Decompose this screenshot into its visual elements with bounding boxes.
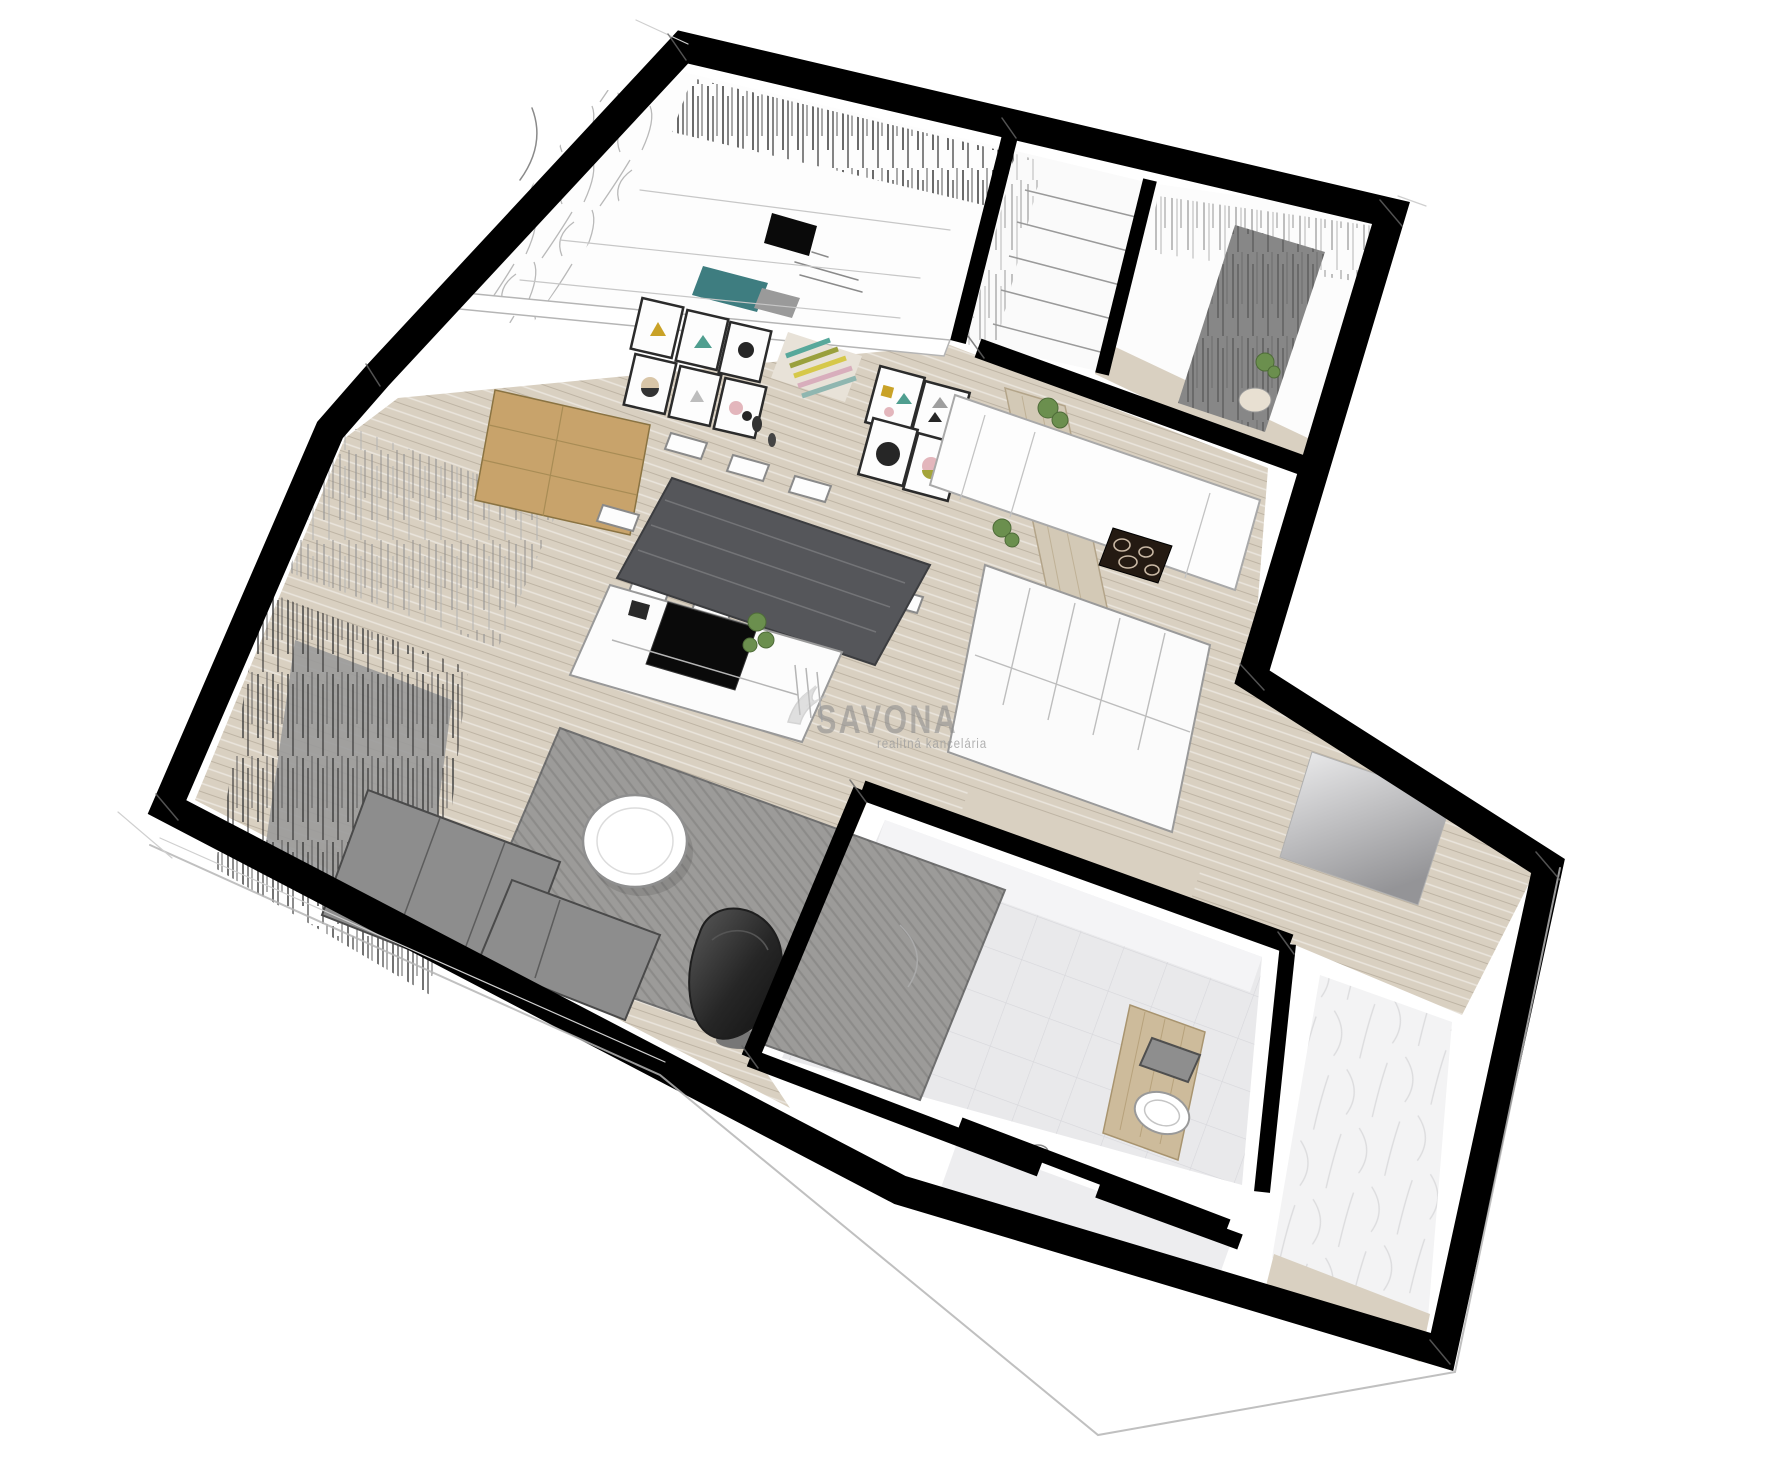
coffee-table — [583, 795, 687, 887]
bedroom2-stool — [1239, 388, 1271, 412]
floor-plan-svg: SAVONA realitná kancelária — [0, 0, 1783, 1482]
watermark-tagline: realitná kancelária — [877, 735, 987, 751]
pendant-vase — [752, 416, 762, 432]
floor-plan-render: SAVONA realitná kancelária — [0, 0, 1783, 1482]
pendant-vase — [768, 433, 776, 447]
